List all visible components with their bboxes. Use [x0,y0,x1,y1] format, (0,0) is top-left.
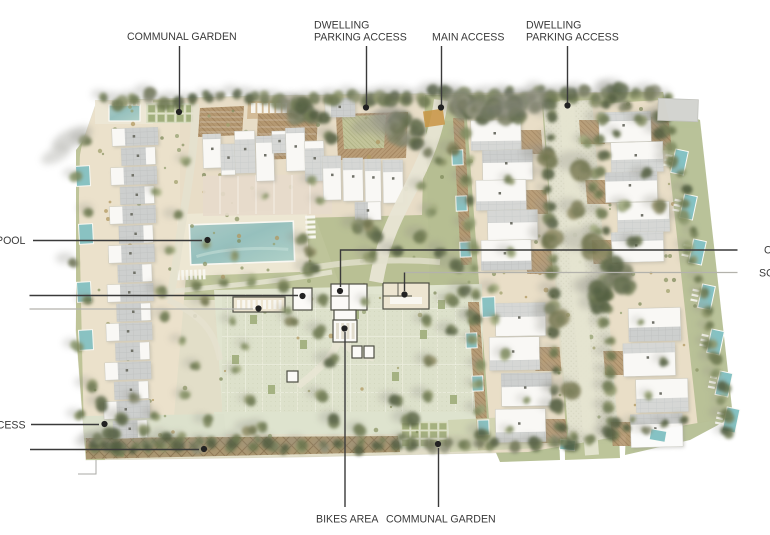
svg-text:CLUB: CLUB [764,245,770,257]
svg-text:COMMUNAL GARDEN: COMMUNAL GARDEN [127,31,237,43]
svg-text:COMMUNAL GARDEN: COMMUNAL GARDEN [386,514,496,526]
svg-text:BIKES AREA: BIKES AREA [316,514,379,526]
svg-text:MAIN ACCESS: MAIN ACCESS [432,31,504,43]
svg-text:PARKING ACCESS: PARKING ACCESS [526,31,619,43]
svg-text:PARKING ACCESS: PARKING ACCESS [314,31,407,43]
svg-text:DWELLING: DWELLING [314,20,369,32]
svg-text:SOCIAL: SOCIAL [759,268,770,280]
svg-text:POOL: POOL [0,235,26,247]
svg-text:ACCESS: ACCESS [0,420,26,432]
svg-text:DWELLING: DWELLING [526,20,581,32]
